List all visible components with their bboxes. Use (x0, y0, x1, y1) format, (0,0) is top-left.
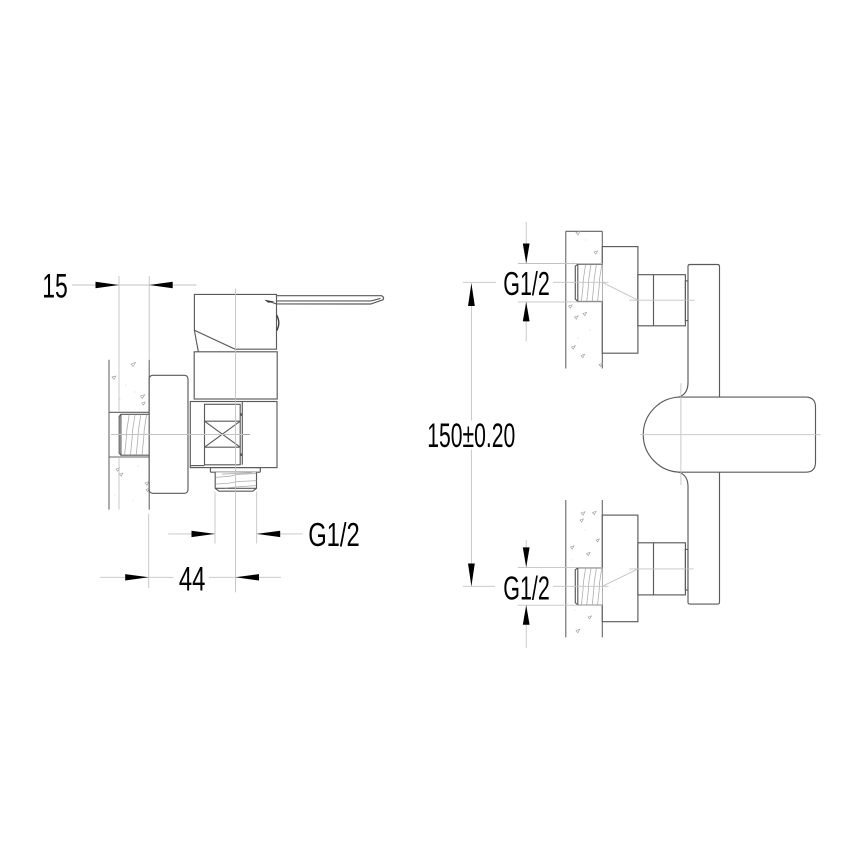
svg-text:150±0.20: 150±0.20 (427, 417, 515, 455)
svg-text:G1/2: G1/2 (308, 517, 360, 554)
svg-text:15: 15 (42, 268, 68, 306)
svg-text:G1/2: G1/2 (503, 266, 550, 303)
svg-text:44: 44 (179, 560, 206, 598)
svg-text:G1/2: G1/2 (503, 571, 550, 608)
